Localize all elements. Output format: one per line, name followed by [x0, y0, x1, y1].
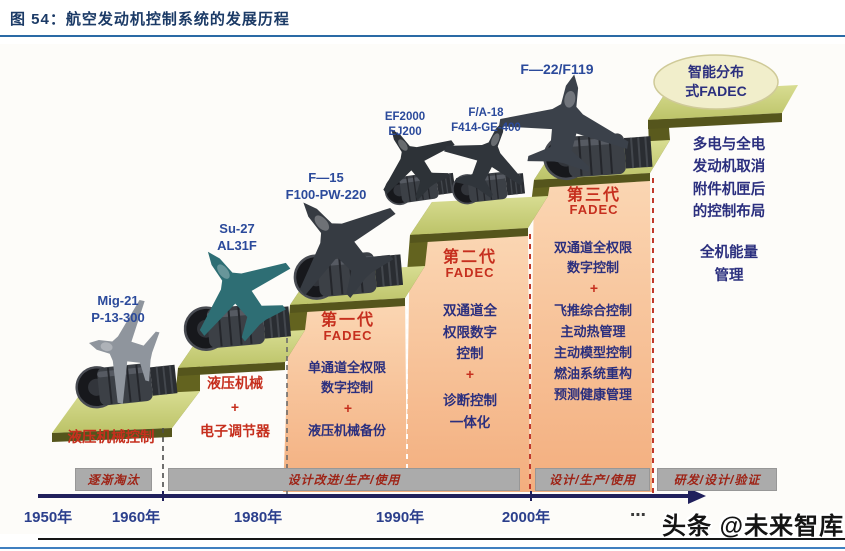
bottom-black-rule [38, 538, 845, 540]
label-ef2000: EF2000 EJ200 [372, 110, 438, 140]
stage4-plus: + [420, 366, 520, 382]
stage4-generation: 第二代 [418, 243, 522, 267]
stage3-fadec: FADEC [292, 328, 404, 343]
stage3-plus: + [292, 400, 404, 416]
year-1950: 1950年 [16, 506, 80, 527]
phase-band-2-label: 设计改进/生产/使用 [288, 471, 401, 488]
phase-band-1: 逐渐淘汰 [75, 468, 152, 491]
year-1980: 1980年 [226, 506, 290, 527]
title-underline [0, 35, 845, 37]
stage5-fadec: FADEC [540, 202, 648, 217]
stage3-body-top: 单通道全权限 数字控制 [288, 358, 406, 398]
year-1990: 1990年 [368, 506, 432, 527]
stage4-body-top: 双通道全 权限数字 控制 [420, 300, 520, 365]
stage5-body-top: 双通道全权限 数字控制 [534, 238, 652, 277]
phase-band-2: 设计改进/生产/使用 [168, 468, 520, 491]
phase-band-1-label: 逐渐淘汰 [87, 471, 139, 488]
phase-band-4: 研发/设计/验证 [657, 468, 777, 491]
phase-band-3: 设计/生产/使用 [535, 468, 650, 491]
stage1-caption: 液压机械控制 [50, 426, 172, 447]
bottom-blue-rule [0, 547, 845, 549]
stage4-fadec: FADEC [418, 265, 522, 280]
label-f22: F—22/F119 [498, 60, 616, 78]
figure-aviation-engine-control-history: 图 54：航空发动机控制系统的发展历程 Mig-21 P-13-300 Su-2… [0, 0, 845, 551]
label-f15: F—15 F100-PW-220 [268, 170, 384, 204]
stage5-plus: + [538, 280, 650, 296]
stage3-body-bottom: 液压机械备份 [288, 420, 406, 439]
phase-band-4-label: 研发/设计/验证 [674, 471, 761, 488]
label-fa18: F/A-18 F414-GE-400 [432, 106, 540, 136]
stage6-body1: 多电与全电 发动机取消 附件机匣后 的控制布局 [666, 134, 792, 224]
stage4-body-bottom: 诊断控制 一体化 [420, 390, 520, 433]
year-2000: 2000年 [494, 506, 558, 527]
stage6-body2: 全机能量 管理 [674, 242, 784, 288]
watermark-toutiao: 头条 @未来智库 [662, 506, 844, 541]
label-su27: Su-27 AL31F [196, 221, 278, 255]
stage5-body-bottom: 飞推综合控制 主动热管理 主动模型控制 燃油系统重构 预测健康管理 [532, 300, 654, 405]
stage3-generation: 第一代 [292, 306, 404, 330]
stage6-oval-label: 智能分布 式FADEC [662, 63, 770, 101]
label-mig21: Mig-21 P-13-300 [58, 293, 178, 327]
figure-title: 图 54：航空发动机控制系统的发展历程 [10, 8, 290, 29]
stage2-caption: 液压机械 + 电子调节器 [183, 372, 287, 443]
phase-band-3-label: 设计/生产/使用 [549, 471, 636, 488]
timeline-ellipsis: ⋯ [630, 505, 648, 525]
year-1960: 1960年 [104, 506, 168, 527]
